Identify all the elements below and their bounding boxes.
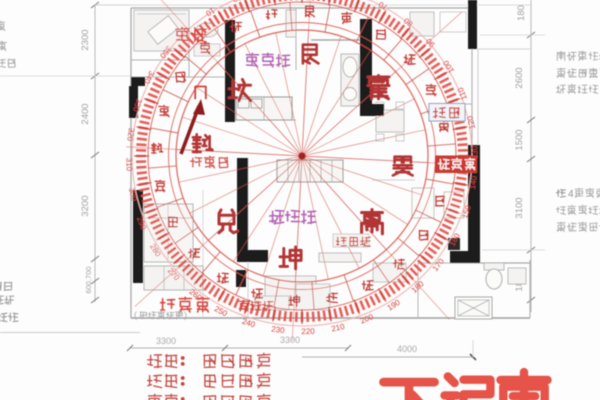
svg-text:4: 4 bbox=[568, 189, 574, 200]
svg-text:2300: 2300 bbox=[80, 29, 91, 50]
svg-text:4000: 4000 bbox=[397, 344, 417, 354]
svg-text:230: 230 bbox=[271, 324, 286, 335]
svg-text:310: 310 bbox=[124, 158, 133, 172]
svg-text:3200: 3200 bbox=[80, 195, 91, 216]
svg-text:220: 220 bbox=[301, 327, 315, 336]
svg-text:320: 320 bbox=[125, 127, 136, 142]
svg-text:2400: 2400 bbox=[80, 103, 91, 124]
svg-text:(: ( bbox=[134, 310, 137, 320]
svg-text:1500: 1500 bbox=[514, 129, 525, 150]
svg-text:): ) bbox=[184, 310, 187, 320]
svg-text:600,700: 600,700 bbox=[84, 266, 93, 293]
svg-text:2600: 2600 bbox=[514, 67, 525, 88]
svg-text:3300: 3300 bbox=[280, 335, 300, 345]
svg-text:3300: 3300 bbox=[156, 336, 176, 346]
svg-text:180: 180 bbox=[516, 5, 527, 21]
svg-text:3100: 3100 bbox=[514, 197, 525, 218]
svg-text:140: 140 bbox=[468, 175, 479, 190]
